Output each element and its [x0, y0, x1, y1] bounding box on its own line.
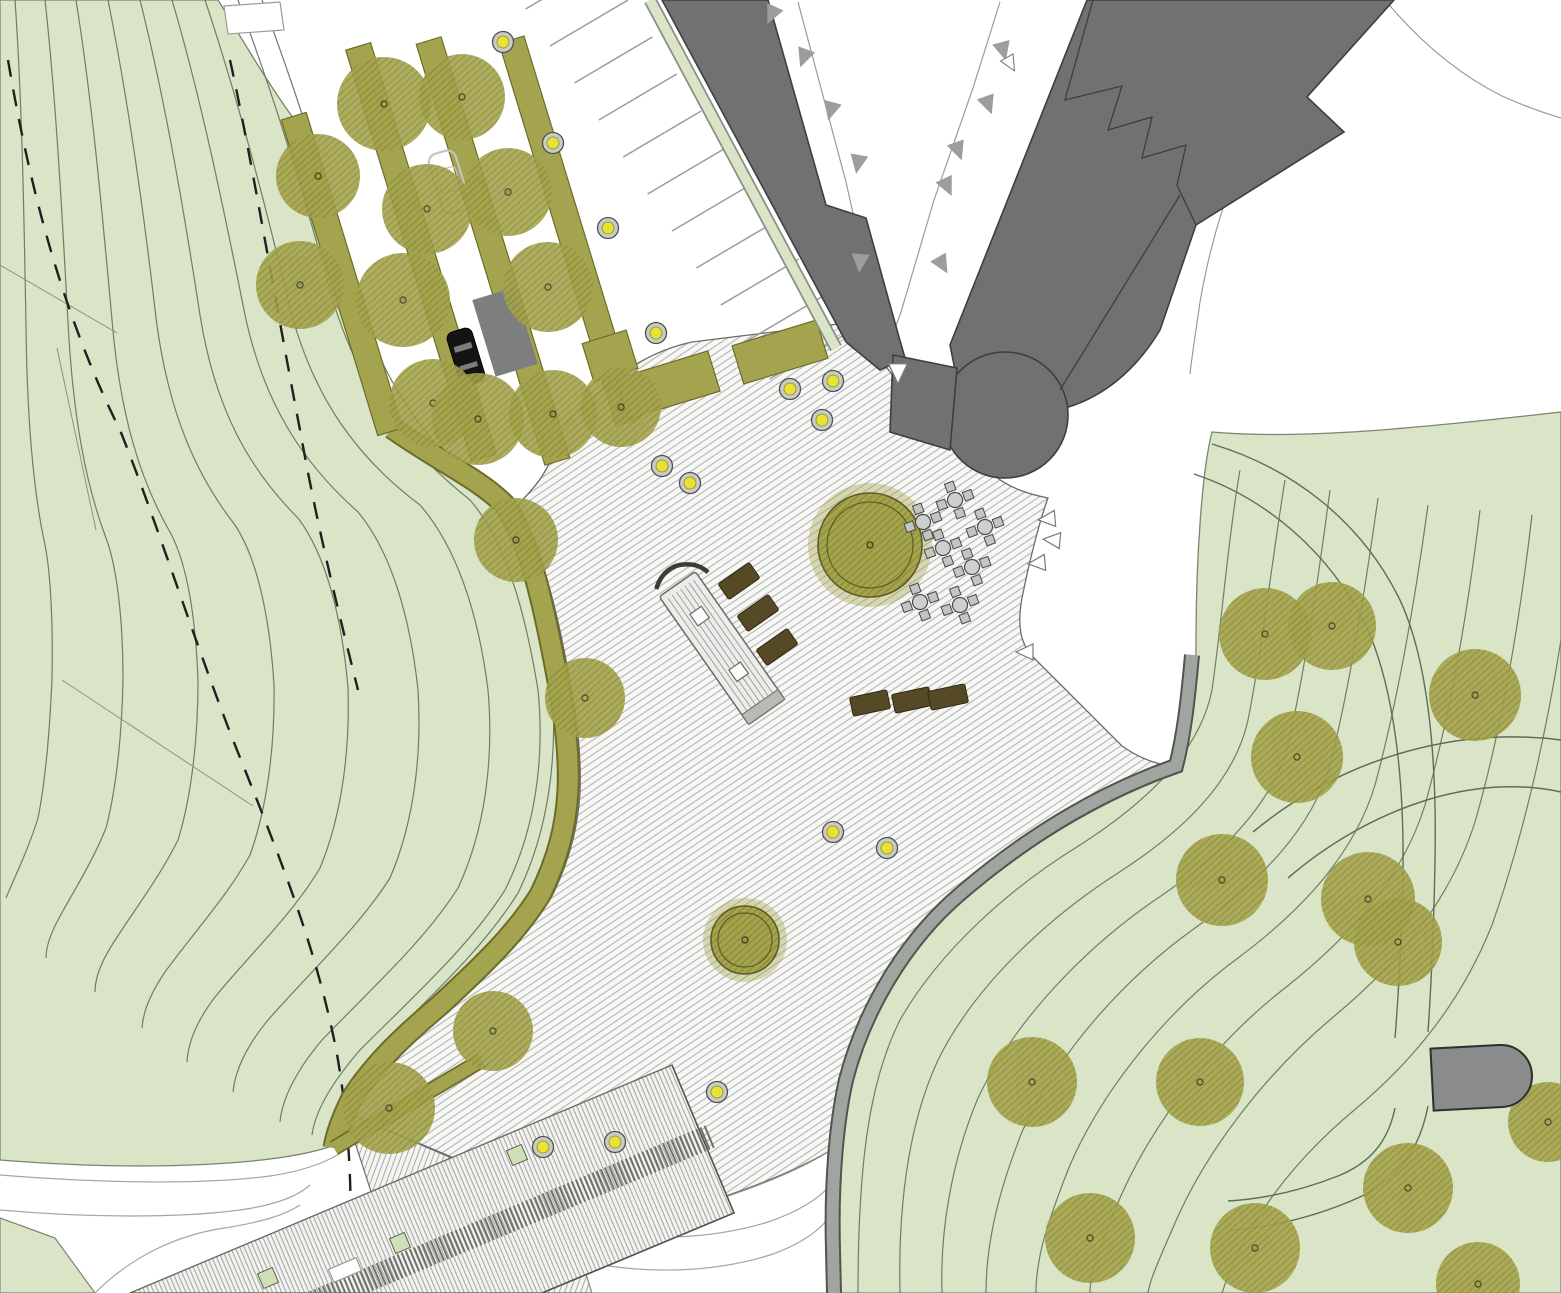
tree-canopy [356, 253, 450, 347]
light-lamp [547, 137, 559, 149]
light-lamp [609, 1136, 621, 1148]
main-building-apse [942, 352, 1068, 478]
light-lamp [650, 327, 662, 339]
tree-canopy-circle [1251, 711, 1343, 803]
tree-canopy-circle [343, 1062, 435, 1154]
light-lamp [827, 375, 839, 387]
tree-canopy-circle [503, 242, 593, 332]
tree-canopy [453, 991, 533, 1071]
tree-canopy-circle [581, 367, 661, 447]
tree-canopy [1176, 834, 1268, 926]
tree-canopy-circle [1429, 649, 1521, 741]
light-lamp [784, 383, 796, 395]
tree-canopy [382, 164, 472, 254]
light-lamp [816, 414, 828, 426]
light-bollard [780, 379, 801, 400]
light-lamp [602, 222, 614, 234]
light-bollard [652, 456, 673, 477]
kiosk-structure [1430, 1043, 1533, 1110]
tree-canopy [1288, 582, 1376, 670]
tree-canopy-circle [382, 164, 472, 254]
tree-canopy-circle [474, 498, 558, 582]
tree-canopy [1354, 898, 1442, 986]
tree-canopy-circle [1156, 1038, 1244, 1126]
tree-canopy-circle [256, 241, 344, 329]
tree-canopy-circle [1210, 1203, 1300, 1293]
tree-canopy-circle [419, 54, 505, 140]
tree-canopy-circle [1363, 1143, 1453, 1233]
tree-canopy [464, 148, 552, 236]
tree-canopy [581, 367, 661, 447]
light-bollard [680, 473, 701, 494]
tree-canopy-circle [337, 57, 431, 151]
tree-canopy [474, 498, 558, 582]
tree-canopy [1210, 1203, 1300, 1293]
tree-canopy [1429, 649, 1521, 741]
tree-canopy [419, 54, 505, 140]
site-plan-page [0, 0, 1561, 1293]
tree-canopy-circle [1176, 834, 1268, 926]
tree-canopy-circle [1354, 898, 1442, 986]
light-bollard [533, 1137, 554, 1158]
light-bollard [646, 323, 667, 344]
tree-canopy [987, 1037, 1077, 1127]
tree-canopy [276, 134, 360, 218]
tree-canopy-circle [464, 148, 552, 236]
planter-ring-outer [818, 493, 922, 597]
light-bollard [812, 410, 833, 431]
light-lamp [537, 1141, 549, 1153]
tree-canopy [503, 242, 593, 332]
tree-canopy [1045, 1193, 1135, 1283]
light-bollard [877, 838, 898, 859]
planter-ring-outer [711, 906, 779, 974]
light-lamp [656, 460, 668, 472]
tree-canopy-circle [1288, 582, 1376, 670]
tree-canopy-circle [1045, 1193, 1135, 1283]
tree-canopy [545, 658, 625, 738]
shed-outline [224, 2, 284, 34]
tree-canopy [1363, 1143, 1453, 1233]
tree-canopy [256, 241, 344, 329]
light-lamp [827, 826, 839, 838]
light-bollard [493, 32, 514, 53]
light-lamp [881, 842, 893, 854]
plaza-tree-planter [703, 898, 787, 982]
tree-canopy-circle [453, 991, 533, 1071]
kiosk-footprint [1430, 1043, 1533, 1110]
light-bollard [543, 133, 564, 154]
light-lamp [497, 36, 509, 48]
light-lamp [711, 1086, 723, 1098]
tree-canopy [337, 57, 431, 151]
light-bollard [598, 218, 619, 239]
tree-canopy-circle [987, 1037, 1077, 1127]
layer-kiosk [1430, 1043, 1533, 1110]
light-lamp [684, 477, 696, 489]
tree-canopy [1251, 711, 1343, 803]
site-plan [0, 0, 1561, 1293]
light-bollard [605, 1132, 626, 1153]
light-bollard [823, 371, 844, 392]
tree-canopy-circle [356, 253, 450, 347]
tree-canopy [1156, 1038, 1244, 1126]
tree-canopy-circle [276, 134, 360, 218]
tree-canopy [343, 1062, 435, 1154]
light-bollard [707, 1082, 728, 1103]
tree-canopy-circle [545, 658, 625, 738]
light-bollard [823, 822, 844, 843]
